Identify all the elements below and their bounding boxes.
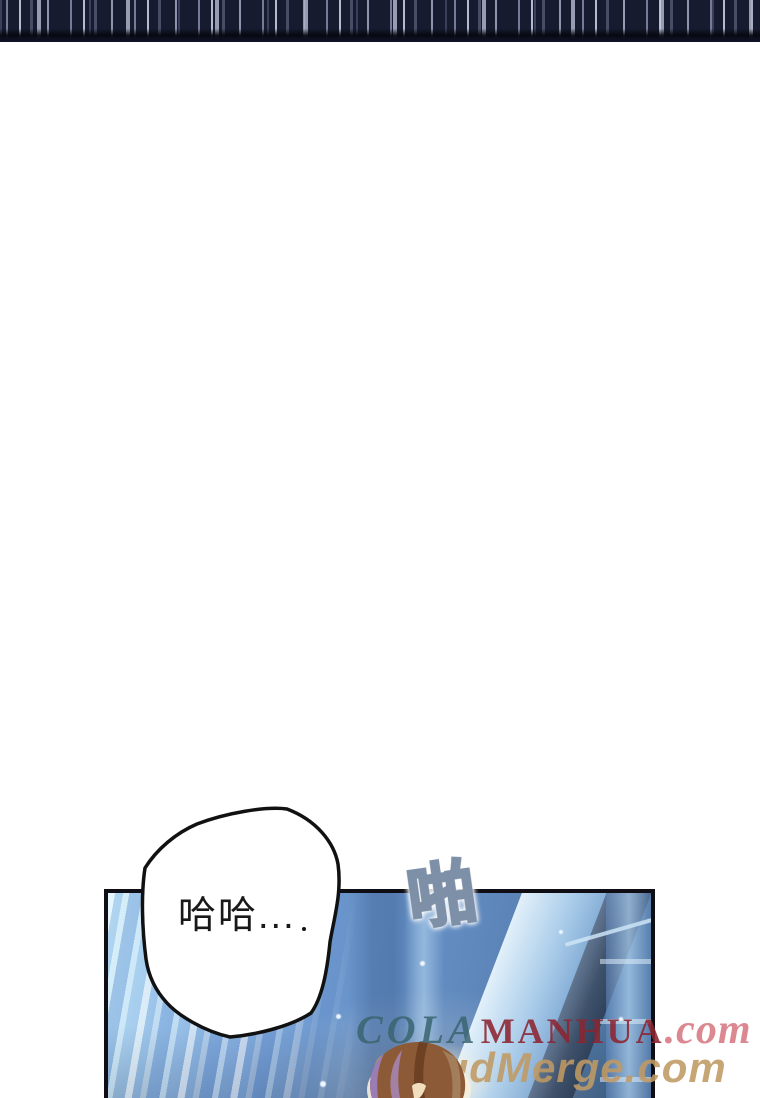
previous-panel-streaks: [0, 0, 760, 42]
character-head: [362, 1040, 474, 1098]
sparkle-dot: [420, 961, 425, 966]
ink-dot: [302, 927, 306, 931]
watermark-merge-com-text: .com: [625, 1044, 727, 1091]
sparkle-dot: [320, 1081, 326, 1087]
ladder-rung: [600, 959, 655, 964]
speech-bubble-text: 哈哈...: [178, 896, 328, 938]
sparkle-dot: [559, 930, 563, 934]
comic-page: 啪 哈哈... COLA MANHUA .com CloudMerge.com: [0, 0, 760, 1098]
sfx-text: 啪: [404, 858, 481, 935]
